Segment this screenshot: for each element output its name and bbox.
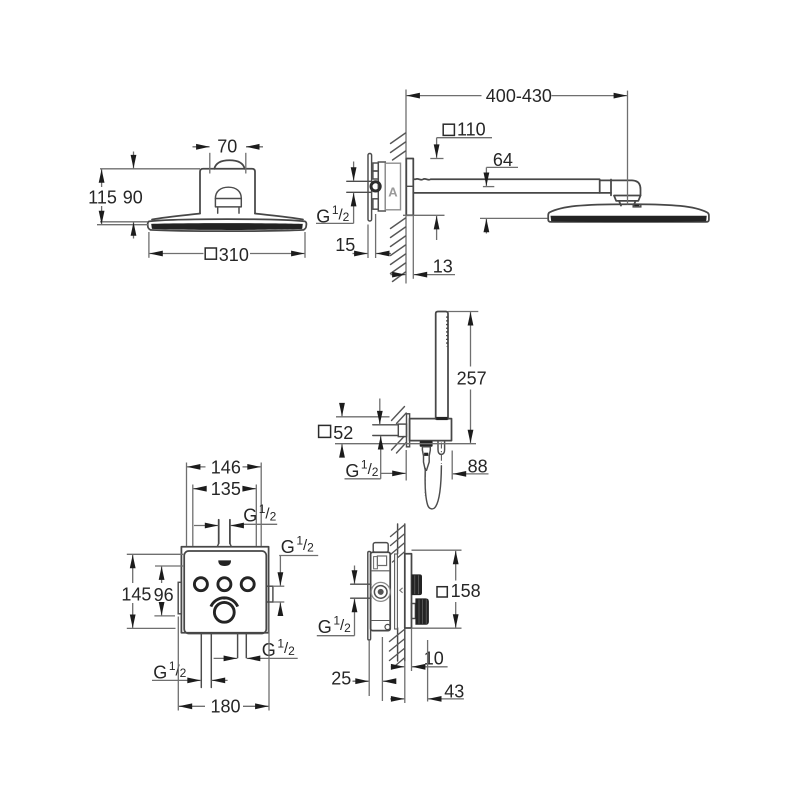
svg-text:96: 96: [154, 585, 174, 605]
svg-text:15: 15: [335, 235, 355, 255]
svg-text:88: 88: [468, 456, 488, 476]
svg-text:400-430: 400-430: [486, 86, 552, 106]
svg-text:310: 310: [219, 245, 249, 265]
svg-text:110: 110: [457, 120, 486, 140]
svg-text:158: 158: [451, 581, 481, 601]
svg-text:145: 145: [121, 585, 151, 605]
svg-text:90: 90: [123, 188, 143, 208]
svg-text:25: 25: [331, 669, 351, 689]
svg-text:146: 146: [211, 458, 241, 478]
svg-text:115: 115: [88, 188, 117, 208]
svg-text:10: 10: [424, 649, 444, 669]
svg-text:135: 135: [211, 479, 241, 499]
svg-text:70: 70: [217, 137, 237, 157]
svg-text:180: 180: [211, 696, 241, 716]
svg-text:52: 52: [333, 423, 353, 443]
svg-text:13: 13: [433, 257, 453, 277]
svg-text:257: 257: [457, 368, 487, 388]
svg-text:A: A: [388, 184, 398, 199]
svg-text:43: 43: [444, 681, 464, 701]
